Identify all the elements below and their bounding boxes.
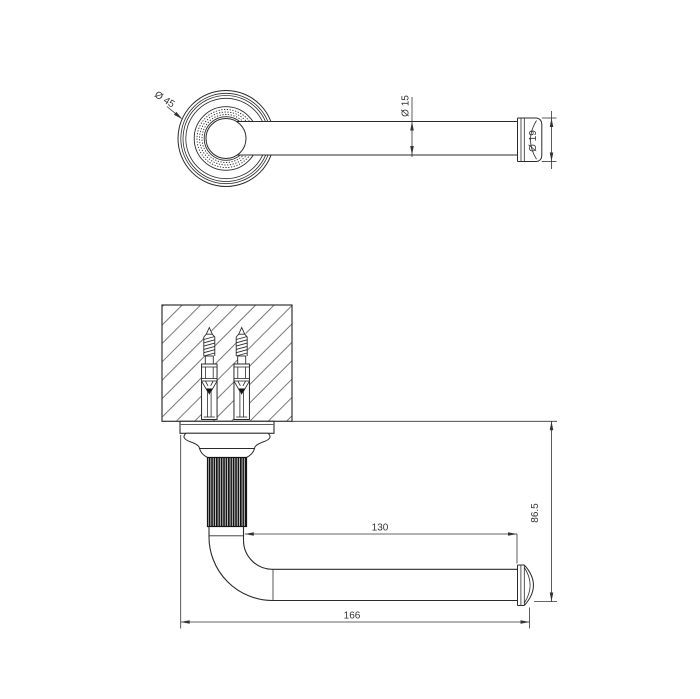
dim-label-rosette: Ø 45 bbox=[152, 89, 177, 110]
technical-drawing-page: Ø 45 Ø 15 Ø 19 bbox=[0, 0, 700, 699]
screw-right bbox=[234, 328, 250, 420]
dim-label-tube: Ø 15 bbox=[401, 95, 412, 117]
dim-label-cap: Ø 19 bbox=[528, 130, 539, 152]
flange-moldings bbox=[180, 421, 274, 457]
technical-drawing-canvas: Ø 45 Ø 15 Ø 19 bbox=[0, 0, 700, 699]
dim-label-overall-height: 86.5 bbox=[530, 503, 541, 523]
top-view: Ø 45 Ø 15 Ø 19 bbox=[152, 89, 556, 186]
wall-section bbox=[162, 305, 292, 421]
elbow-arm bbox=[209, 527, 518, 601]
dim-arm-length: 130 bbox=[245, 523, 517, 564]
knurled-stem bbox=[208, 458, 247, 527]
tube-top bbox=[206, 119, 518, 159]
screw-left bbox=[202, 328, 218, 420]
end-cap-front bbox=[518, 565, 534, 606]
dim-label-overall-length: 166 bbox=[344, 611, 361, 622]
dim-rosette-diameter: Ø 45 bbox=[152, 89, 182, 119]
front-view: 130 166 86.5 bbox=[162, 305, 557, 629]
dim-label-arm-length: 130 bbox=[372, 523, 389, 534]
hub-circle bbox=[206, 119, 246, 159]
